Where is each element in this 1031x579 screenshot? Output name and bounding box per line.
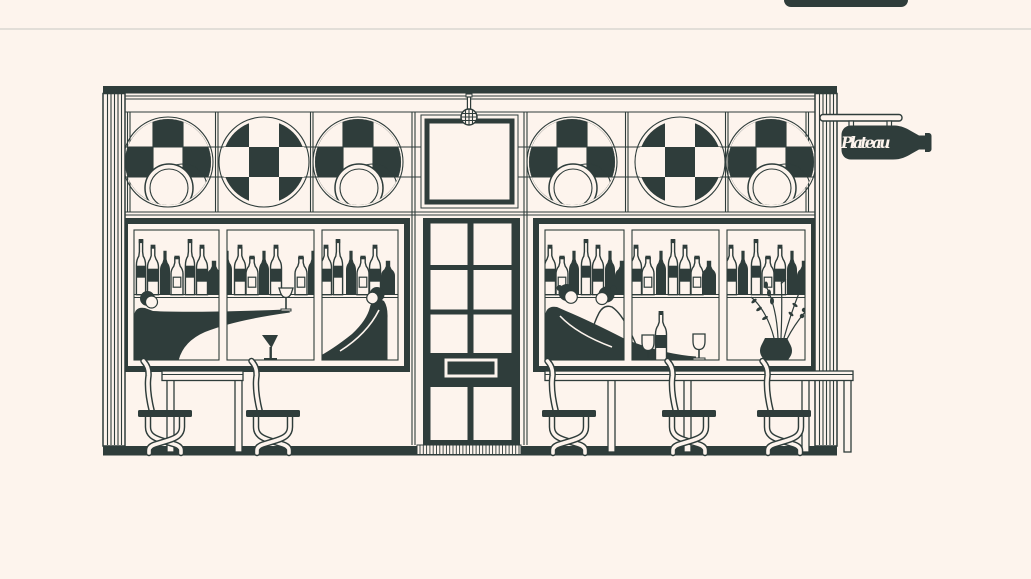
letterbox: [446, 360, 496, 376]
medallion-3: [313, 117, 403, 212]
doormat: [417, 445, 521, 455]
medallion-6: [726, 117, 816, 212]
entry-door[interactable]: [423, 218, 520, 445]
sign-text: Plateau: [840, 133, 891, 152]
medallion-4: [527, 117, 617, 212]
storefront-illustration: Plateau: [0, 0, 1031, 579]
page: Plateau: [0, 0, 1031, 579]
bar-stool: [246, 361, 300, 453]
left-pilaster: [103, 94, 125, 447]
blank-fascia-sign: [421, 115, 518, 208]
medallion-5: [635, 117, 725, 207]
medallion-2: [219, 117, 309, 207]
right-pilaster: [815, 94, 837, 447]
right-window: [533, 218, 817, 372]
medallion-1: [123, 117, 213, 212]
left-window: [122, 218, 410, 372]
